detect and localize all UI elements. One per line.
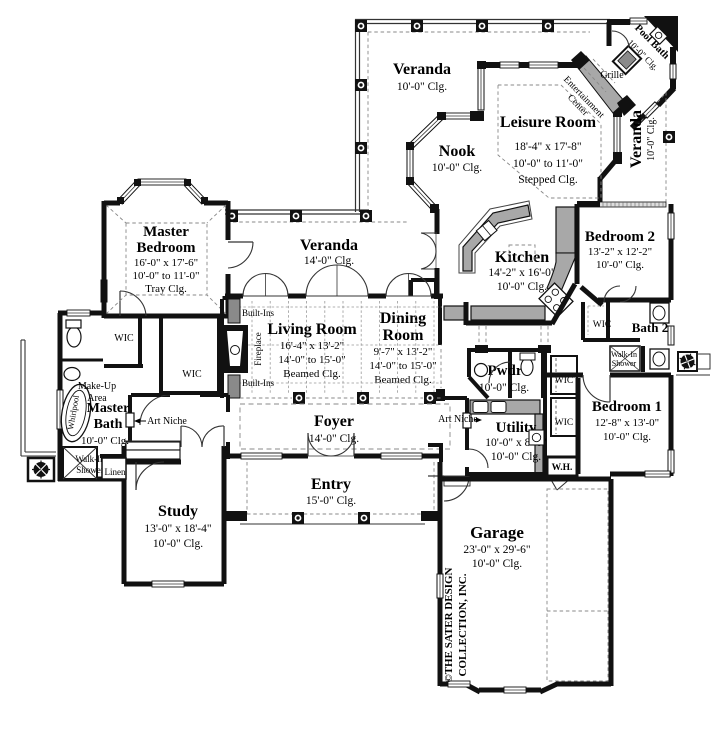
svg-text:Beamed Clg.: Beamed Clg. (283, 368, 341, 380)
svg-text:16'-4" x 13'-2": 16'-4" x 13'-2" (280, 340, 344, 352)
svg-text:9'-7" x 13'-2": 9'-7" x 13'-2" (374, 346, 433, 358)
svg-text:Study: Study (158, 503, 198, 520)
svg-text:Beamed Clg.: Beamed Clg. (374, 374, 432, 386)
svg-text:WIC: WIC (593, 320, 611, 330)
svg-text:12'-8" x 13'-0": 12'-8" x 13'-0" (595, 417, 659, 429)
svg-text:Bedroom 2: Bedroom 2 (585, 229, 655, 245)
svg-text:Foyer: Foyer (314, 413, 354, 430)
svg-text:Living Room: Living Room (267, 321, 357, 338)
svg-text:Nook: Nook (439, 143, 476, 160)
svg-text:Walk-In: Walk-In (611, 350, 637, 359)
svg-text:10'-0" Clg.: 10'-0" Clg. (432, 162, 482, 174)
svg-text:10'-0" to 11'-0": 10'-0" to 11'-0" (133, 270, 200, 282)
svg-text:10'-0" Clg.: 10'-0" Clg. (81, 435, 129, 447)
svg-text:10'-0" to 11'-0": 10'-0" to 11'-0" (513, 158, 583, 170)
svg-text:WIC: WIC (182, 369, 202, 380)
svg-text:10'-0" Clg.: 10'-0" Clg. (397, 81, 447, 93)
svg-text:14'-2" x 16'-0": 14'-2" x 16'-0" (488, 267, 555, 279)
svg-text:Stepped Clg.: Stepped Clg. (518, 174, 578, 186)
svg-text:Master: Master (87, 401, 130, 416)
svg-text:Shower: Shower (76, 465, 104, 475)
svg-text:Bedroom: Bedroom (137, 240, 196, 256)
svg-text:14'-0" to 15'-0": 14'-0" to 15'-0" (278, 354, 345, 366)
svg-text:10'-0" Clg.: 10'-0" Clg. (472, 558, 522, 570)
svg-text:Garage: Garage (470, 523, 524, 542)
svg-text:Shower: Shower (612, 359, 637, 368)
svg-text:10'-0" Clg.: 10'-0" Clg. (497, 281, 547, 293)
svg-text:14'-0" to 15'-0": 14'-0" to 15'-0" (369, 360, 436, 372)
svg-text:Art Niche: Art Niche (438, 414, 478, 425)
svg-text:Fireplace: Fireplace (253, 332, 263, 365)
svg-text:Entry: Entry (311, 476, 351, 493)
svg-text:W.H.: W.H. (552, 463, 573, 473)
svg-text:Room: Room (383, 327, 425, 344)
svg-text:Make-Up: Make-Up (78, 381, 116, 392)
svg-text:Veranda: Veranda (393, 61, 451, 78)
svg-text:Kitchen: Kitchen (495, 249, 549, 266)
svg-text:COLLECTION, INC.: COLLECTION, INC. (457, 573, 469, 676)
svg-text:10'-0" Clg.: 10'-0" Clg. (646, 117, 657, 161)
svg-text:16'-0" x 17'-6": 16'-0" x 17'-6" (134, 257, 198, 269)
svg-text:10'-0" Clg.: 10'-0" Clg. (491, 451, 541, 463)
svg-text:10'-0" Clg.: 10'-0" Clg. (153, 538, 203, 550)
svg-text:Bath 2: Bath 2 (632, 320, 668, 335)
svg-text:Bedroom 1: Bedroom 1 (592, 399, 662, 415)
svg-text:10'-0" Clg.: 10'-0" Clg. (603, 431, 651, 443)
svg-text:10'-0" Clg.: 10'-0" Clg. (596, 259, 644, 271)
svg-text:Built-Ins: Built-Ins (242, 378, 274, 388)
svg-text:13'-2" x 12'-2": 13'-2" x 12'-2" (588, 246, 652, 258)
svg-text:23'-0" x 29'-6": 23'-0" x 29'-6" (463, 544, 530, 556)
svg-text:Linen: Linen (105, 467, 126, 477)
svg-text:13'-0" x 18'-4": 13'-0" x 18'-4" (144, 523, 211, 535)
svg-text:Art Niche: Art Niche (147, 416, 187, 427)
svg-text:WIC: WIC (114, 333, 134, 344)
svg-text:WIC: WIC (555, 418, 573, 428)
svg-text:15'-0" Clg.: 15'-0" Clg. (306, 495, 356, 507)
svg-text:18'-4" x 17'-8": 18'-4" x 17'-8" (514, 141, 581, 153)
svg-text:Grille: Grille (600, 70, 624, 81)
svg-text:©THE SATER DESIGN: ©THE SATER DESIGN (443, 567, 455, 682)
svg-text:Built-Ins: Built-Ins (242, 308, 274, 318)
svg-text:Tray Clg.: Tray Clg. (145, 283, 187, 295)
svg-text:Master: Master (143, 224, 189, 240)
svg-text:Veranda: Veranda (300, 237, 358, 254)
svg-text:14'-0" Clg.: 14'-0" Clg. (304, 255, 354, 267)
svg-text:Dining: Dining (380, 310, 426, 327)
svg-text:10'-0" Clg.: 10'-0" Clg. (479, 382, 529, 394)
svg-text:Bath: Bath (94, 417, 123, 432)
svg-text:Veranda: Veranda (628, 110, 645, 168)
